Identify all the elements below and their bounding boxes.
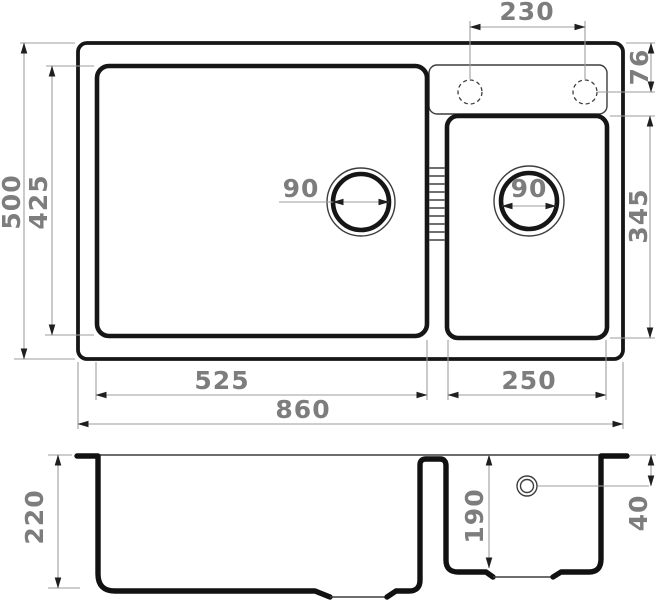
dim-label-overflow-offset: 40	[624, 495, 653, 532]
dim-label-main-bowl-height: 220	[20, 489, 49, 544]
divider-grooves	[430, 168, 445, 240]
dim-faucet-spacing: 230	[470, 0, 585, 79]
dim-label-small-bowl-depth: 345	[624, 188, 653, 243]
dim-main-bowl-width: 525	[96, 340, 427, 400]
faucet-hole-right	[573, 80, 597, 104]
overflow-hole	[517, 476, 649, 496]
sink-dimensional-drawing: 90 90 230 76 500	[0, 0, 657, 600]
dim-label-small-drain: 90	[511, 174, 548, 203]
dim-label-overall-width: 860	[275, 395, 330, 424]
dim-small-bowl-height: 190	[460, 455, 489, 568]
small-drain: 90	[494, 166, 564, 236]
dim-overflow-offset: 40	[624, 455, 656, 531]
main-bowl-profile	[77, 456, 330, 597]
overflow-inner-ring	[521, 480, 534, 493]
dim-main-bowl-height: 220	[20, 455, 80, 588]
dim-label-small-bowl-height: 190	[460, 488, 489, 543]
main-drain: 90	[279, 168, 395, 236]
top-view: 90 90 230 76 500	[0, 0, 655, 429]
main-bowl	[97, 66, 427, 336]
dim-small-bowl-depth: 345	[610, 116, 655, 338]
section-view: 220 190 40	[20, 455, 656, 597]
dim-main-bowl-depth: 425	[24, 66, 94, 335]
dim-label-main-bowl-depth: 425	[24, 174, 53, 229]
dim-label-small-bowl-width: 250	[501, 366, 556, 395]
dim-label-main-bowl-width: 525	[194, 366, 249, 395]
dim-label-faucet-offset: 76	[625, 49, 654, 86]
drawing-canvas: 90 90 230 76 500	[0, 0, 657, 600]
dim-label-main-drain: 90	[283, 174, 320, 203]
dim-label-overall-depth: 500	[0, 174, 26, 229]
dim-label-faucet-spacing: 230	[499, 0, 554, 26]
small-bowl-profile	[553, 456, 627, 577]
faucet-deck	[429, 65, 607, 114]
faucet-hole-left	[458, 80, 482, 104]
dim-small-bowl-width: 250	[448, 340, 606, 400]
